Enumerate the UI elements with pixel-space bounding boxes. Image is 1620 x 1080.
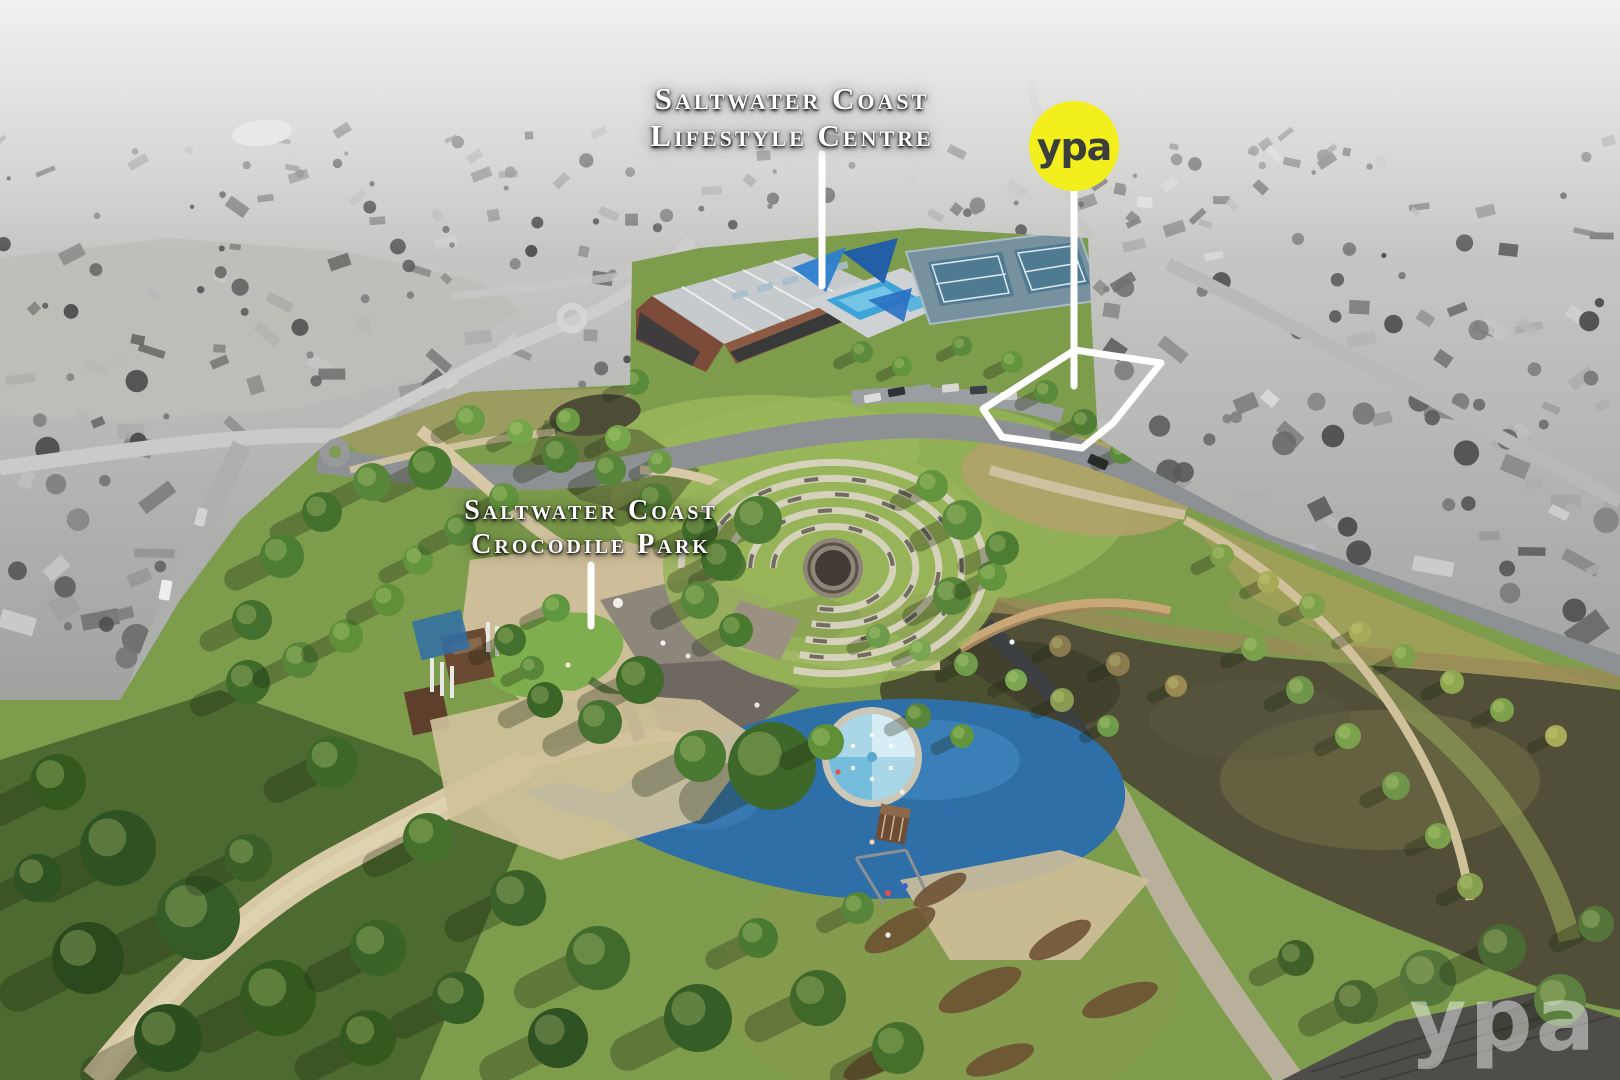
label-crocodile-park: Saltwater Coast Crocodile Park [464, 494, 717, 562]
label-crocodile-line1: Saltwater Coast [464, 494, 717, 528]
label-lifestyle-line2: Lifestyle Centre [650, 117, 933, 154]
ypa-watermark: ypa [1409, 968, 1598, 1071]
annotation-overlay: ypa ypa [0, 0, 1620, 1080]
label-lifestyle-line1: Saltwater Coast [650, 80, 933, 117]
label-lifestyle-centre: Saltwater Coast Lifestyle Centre [650, 80, 933, 154]
aerial-photo: ypa ypa Saltwater Coast Lifestyle Centre… [0, 0, 1620, 1080]
ypa-logo-text: ypa [1037, 125, 1112, 169]
label-crocodile-line2: Crocodile Park [464, 528, 717, 562]
